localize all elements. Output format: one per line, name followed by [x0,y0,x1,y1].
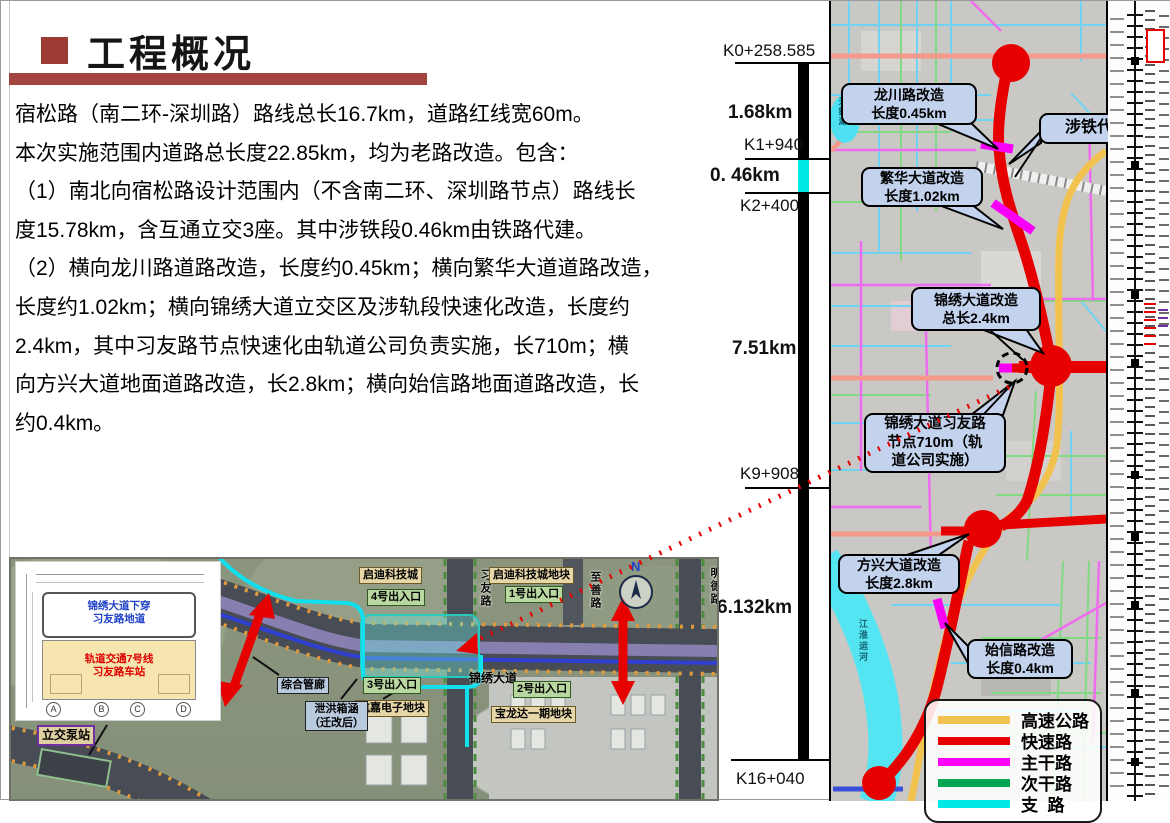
legend-swatch-branch [938,800,1010,808]
label-exit3: 3号出入口 [363,677,421,694]
station-strip-names [1145,3,1155,799]
chainage-tick [745,192,831,194]
chainage-tick [731,759,831,761]
chainage-seg-1: 1.68km [728,102,792,124]
label-zhishan-road: 至善路 [587,571,603,610]
station-strip-highlight-box [1146,29,1165,63]
station-strip-axis [1134,1,1136,801]
legend-swatch-secondary [938,779,1010,787]
column-mark-a: A [46,702,61,717]
station-strip-red-text [1144,297,1156,345]
station-strip [1108,1,1170,801]
callout-shixin: 始信路改造 长度0.4km [967,639,1073,679]
chainage-rail-segment [798,159,809,193]
dimension-line [26,574,27,708]
legend-row-highway: 高速公路 [938,709,1100,730]
chainage-tick [745,487,831,489]
legend-swatch-expressway [938,737,1010,745]
station-strip-names [1159,6,1169,796]
overview-line: 2.4km，其中习友路节点快速化由轨道公司负责实施，长710m；横 [15,328,721,367]
label-qidi-block: 启迪科技城地块 [489,567,574,584]
callout-longchuan: 龙川路改造 长度0.45km [841,83,977,125]
page-title: 工程概况 [87,23,255,78]
column-mark-d: D [176,702,191,717]
title-bullet-square [41,37,68,64]
compass-n-label: N [631,559,640,574]
chainage-label-k9: K9+908 [740,464,799,484]
legend-swatch-highway [938,716,1010,724]
station-node [1131,533,1139,541]
label-exit1: 1号出入口 [505,586,563,603]
overview-line: 度15.78km，含互通立交3座。其中涉铁段0.46km由铁路代建。 [15,212,721,251]
map-legend: 高速公路 快速路 主干路 次干路 支 路 [924,699,1102,823]
chainage-tick [735,62,831,64]
tunnel-structure-box: 锦绣大道下穿 习友路地道 [42,592,196,638]
callout-xiyou-node: 锦绣大道习友路 节点710m（轨 道公司实施） [864,413,1006,473]
dimension-line [36,574,204,575]
callout-fangxing: 方兴大道改造 长度2.8km [838,554,960,594]
column-mark-c: C [130,702,145,717]
chainage-label-k0: K0+258.585 [723,41,815,61]
overview-line: 向方兴大道地面道路改造，长2.8km；横向始信路地面道路改造，长 [15,366,721,405]
overview-line: 约0.4km。 [15,405,721,444]
overview-line: 本次实施范围内道路总长度22.85km，均为老路改造。包含： [15,135,721,174]
label-qidi: 启迪科技城 [359,567,422,584]
canal [831,559,885,801]
dimension-line [32,592,33,702]
intersection-inset-map: 启迪科技城 4号出入口 习友路 启迪科技城地块 1号出入口 至善路 N 明德路 … [9,557,719,801]
label-mingde-road: 明德路 [707,567,719,606]
label-pump-station: 立交泵站 [37,725,95,746]
column-mark-b: B [94,702,109,717]
station-room [158,674,190,694]
station-node [1131,758,1139,766]
station-drawing-inset: 锦绣大道下穿 习友路地道 轨道交通7号线 习友路车站 A B C D [15,561,221,721]
legend-row-branch: 支 路 [938,793,1100,814]
chainage-seg-4: 6.132km [717,597,792,619]
overview-paragraph: 宿松路（南二环-深圳路）路线总长16.7km，道路红线宽60m。 本次实施范围内… [15,96,721,443]
label-flood-culvert: 泄洪箱涵 （迁改后） [305,701,368,731]
title-underline-bar [9,73,427,85]
route-map: 天鹅湖 江淮运河 龙川路改造 长度0.45km 涉铁代建段 繁华大道改造 长度1… [829,1,1108,801]
label-exit2: 2号出入口 [513,681,571,698]
label-pipe-gallery: 综合管廊 [277,677,329,694]
dimension-line [36,582,204,583]
legend-row-expressway: 快速路 [938,730,1100,751]
callout-fanhua: 繁华大道改造 长度1.02km [861,167,983,207]
chainage-seg-2: 0. 46km [710,165,780,187]
slide: 工程概况 宿松路（南二环-深圳路）路线总长16.7km，道路红线宽60m。 本次… [0,0,1170,800]
station-room [50,674,82,694]
station-strip-distances [1110,7,1124,795]
chainage-tick [745,158,831,160]
station-node [1131,161,1139,169]
label-exit4: 4号出入口 [367,589,425,606]
label-jinxiu-avenue: 锦绣大道 [469,669,517,686]
station-node [1131,57,1139,65]
station-strip-purple-text [1158,303,1168,329]
overview-line: （2）横向龙川路道路改造，长度约0.45km；横向繁华大道道路改造， [15,250,721,289]
overview-line: （1）南北向宿松路设计范围内（不含南二环、深圳路节点）路线长 [15,173,721,212]
legend-row-secondary: 次干路 [938,772,1100,793]
legend-row-arterial: 主干路 [938,751,1100,772]
chainage-seg-3: 7.51km [732,338,796,360]
overview-line: 长度约1.02km；横向锦绣大道立交区及涉轨段快速化改造，长度约 [15,289,721,328]
station-node [1131,601,1139,609]
station-node [1131,291,1139,299]
label-baolongda-block: 宝龙达一期地块 [491,706,576,723]
chainage-label-k2: K2+400 [740,196,799,216]
compass-icon [619,575,653,609]
overview-line: 宿松路（南二环-深圳路）路线总长16.7km，道路红线宽60m。 [15,96,721,135]
callout-jinxiu: 锦绣大道改造 总长2.4km [911,287,1041,331]
station-node [1131,689,1139,697]
legend-swatch-arterial [938,758,1010,766]
chainage-label-k16: K16+040 [736,769,805,789]
station-node [1131,471,1139,479]
canal-label: 江淮运河 [857,619,870,663]
chainage-label-k1: K1+940 [744,135,803,155]
station-node [1131,359,1139,367]
